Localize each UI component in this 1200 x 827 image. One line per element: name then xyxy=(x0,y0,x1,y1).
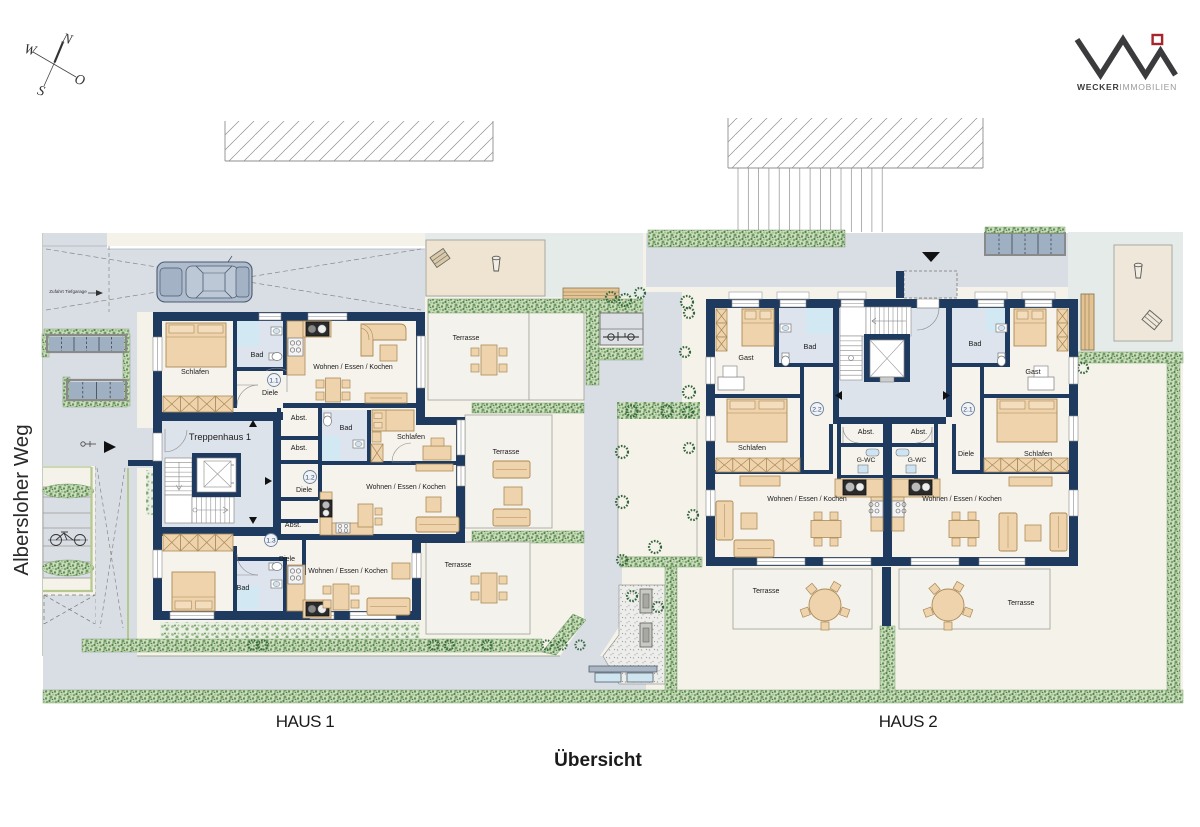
svg-text:Wohnen / Essen / Kochen: Wohnen / Essen / Kochen xyxy=(767,496,847,503)
svg-text:Abst.: Abst. xyxy=(285,520,301,529)
svg-text:Terrasse: Terrasse xyxy=(753,588,780,595)
svg-text:Abst.: Abst. xyxy=(911,427,927,436)
svg-text:Abst.: Abst. xyxy=(291,413,307,422)
svg-text:1.1: 1.1 xyxy=(269,377,279,384)
svg-text:Zufahrt Tiefgarage: Zufahrt Tiefgarage xyxy=(49,289,87,294)
svg-text:Diele: Diele xyxy=(296,487,312,494)
svg-text:Gast: Gast xyxy=(738,353,753,362)
svg-text:Wohnen / Essen / Kochen: Wohnen / Essen / Kochen xyxy=(313,364,393,371)
svg-text:G-WC: G-WC xyxy=(908,457,927,464)
svg-text:Bad: Bad xyxy=(237,583,250,592)
svg-text:Diele: Diele xyxy=(958,451,974,458)
svg-text:2.2: 2.2 xyxy=(812,406,822,413)
svg-text:Schlafen: Schlafen xyxy=(1024,449,1052,458)
svg-text:Terrasse: Terrasse xyxy=(493,449,520,456)
svg-text:Bad: Bad xyxy=(340,423,353,432)
svg-text:1.3: 1.3 xyxy=(266,537,276,544)
svg-text:Terrasse: Terrasse xyxy=(453,335,480,342)
svg-text:Bad: Bad xyxy=(251,350,264,359)
svg-text:Treppenhaus 1: Treppenhaus 1 xyxy=(189,432,251,442)
svg-text:2.1: 2.1 xyxy=(963,406,973,413)
svg-text:Albersloher Weg: Albersloher Weg xyxy=(10,424,33,575)
svg-text:Schlafen: Schlafen xyxy=(738,443,766,452)
svg-text:Abst.: Abst. xyxy=(858,427,874,436)
svg-text:Schlafen: Schlafen xyxy=(181,367,209,376)
svg-text:Schlafen: Schlafen xyxy=(397,432,425,441)
svg-text:Diele: Diele xyxy=(262,390,278,397)
svg-text:G-WC: G-WC xyxy=(857,457,876,464)
svg-text:Bad: Bad xyxy=(804,342,817,351)
svg-text:Wohnen / Essen / Kochen: Wohnen / Essen / Kochen xyxy=(366,484,446,491)
svg-text:Terrasse: Terrasse xyxy=(445,562,472,569)
svg-text:Wohnen / Essen / Kochen: Wohnen / Essen / Kochen xyxy=(922,496,1002,503)
svg-text:HAUS 2: HAUS 2 xyxy=(879,712,937,731)
svg-text:WECKERIMMOBILIEN: WECKERIMMOBILIEN xyxy=(1077,82,1177,92)
svg-text:Diele: Diele xyxy=(279,556,295,563)
svg-text:Terrasse: Terrasse xyxy=(1008,600,1035,607)
svg-text:Gast: Gast xyxy=(1025,367,1040,376)
svg-text:1.2: 1.2 xyxy=(305,474,315,481)
svg-text:Bad: Bad xyxy=(969,339,982,348)
svg-text:HAUS 1: HAUS 1 xyxy=(276,712,334,731)
svg-text:Abst.: Abst. xyxy=(291,443,307,452)
svg-text:Übersicht: Übersicht xyxy=(554,750,642,771)
svg-text:Wohnen / Essen / Kochen: Wohnen / Essen / Kochen xyxy=(308,568,388,575)
